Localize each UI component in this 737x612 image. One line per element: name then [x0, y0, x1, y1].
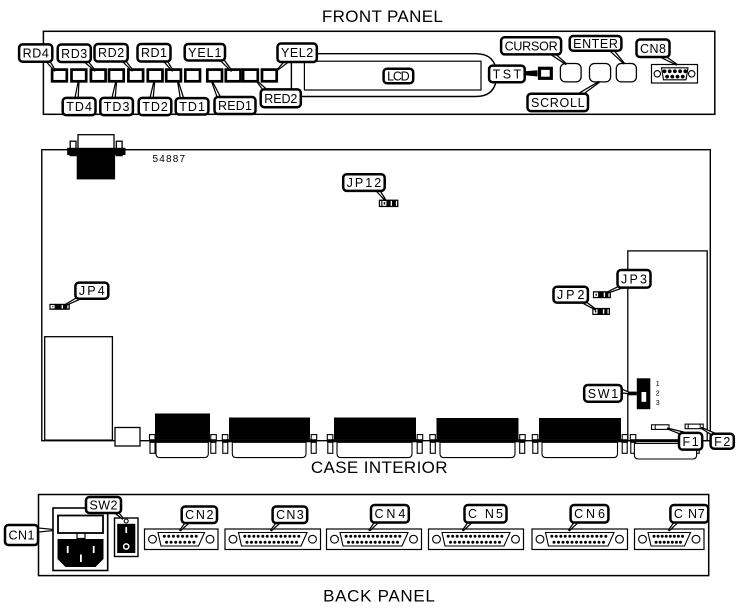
svg-text:RD4: RD4: [23, 47, 49, 61]
svg-text:CN8: CN8: [640, 42, 666, 56]
svg-text:RD2: RD2: [98, 46, 124, 60]
svg-text:TD1: TD1: [179, 100, 205, 114]
svg-text:TD4: TD4: [66, 100, 92, 114]
svg-text:3: 3: [656, 400, 660, 407]
svg-text:1: 1: [656, 381, 660, 388]
svg-text:JP4: JP4: [79, 284, 105, 298]
svg-text:CASE INTERIOR: CASE INTERIOR: [311, 458, 448, 477]
svg-text:FRONT PANEL: FRONT PANEL: [322, 7, 443, 26]
svg-text:BACK PANEL: BACK PANEL: [323, 587, 435, 606]
svg-text:C N5: C N5: [468, 507, 503, 521]
svg-text:YEL2: YEL2: [281, 46, 313, 60]
svg-text:SW1: SW1: [588, 387, 619, 401]
svg-text:SW2: SW2: [90, 499, 118, 513]
svg-text:ENTER: ENTER: [573, 37, 618, 51]
svg-text:TD3: TD3: [104, 100, 130, 114]
svg-text:RD1: RD1: [141, 46, 167, 60]
svg-text:54887: 54887: [153, 154, 186, 165]
svg-text:RED2: RED2: [264, 92, 297, 106]
svg-text:CN2: CN2: [185, 508, 213, 522]
svg-text:RD3: RD3: [61, 47, 87, 61]
svg-text:CN4: CN4: [375, 507, 406, 521]
svg-text:LCD: LCD: [387, 70, 410, 84]
svg-text:CURSOR: CURSOR: [505, 39, 558, 53]
svg-text:CN6: CN6: [574, 507, 605, 521]
svg-text:JP2: JP2: [557, 288, 584, 302]
svg-text:TST: TST: [493, 67, 522, 81]
svg-text:C N7: C N7: [674, 507, 705, 521]
svg-text:CN3: CN3: [276, 508, 304, 522]
svg-text:TD2: TD2: [142, 100, 168, 114]
svg-text:2: 2: [656, 391, 660, 398]
svg-text:YEL1: YEL1: [188, 46, 221, 60]
svg-text:CN1: CN1: [9, 529, 35, 543]
svg-text:SCROLL: SCROLL: [531, 96, 585, 110]
svg-text:RED1: RED1: [218, 99, 252, 113]
svg-text:JP3: JP3: [621, 272, 647, 286]
